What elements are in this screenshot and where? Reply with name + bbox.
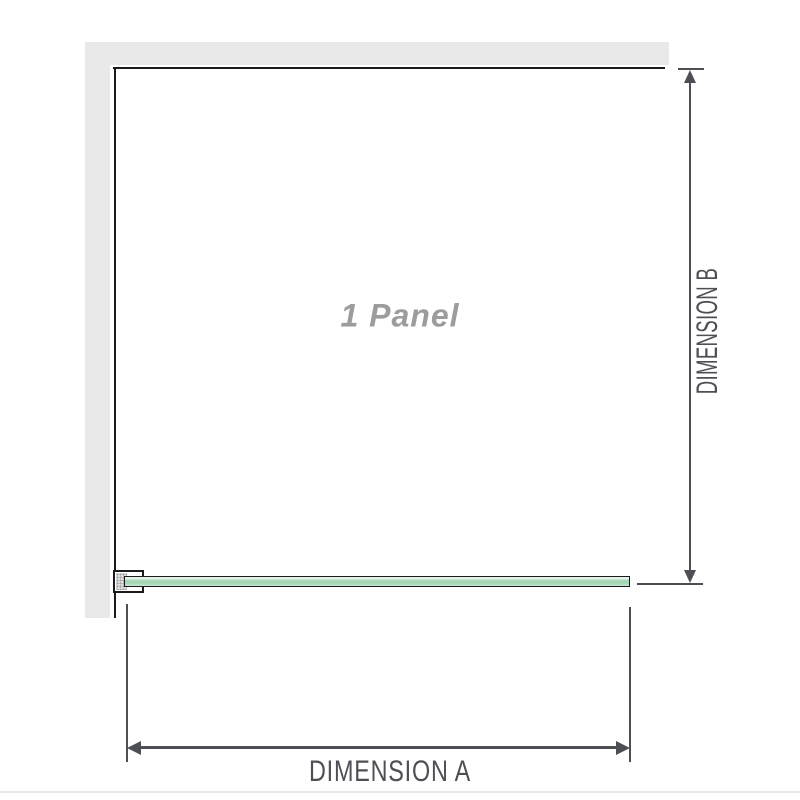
dimension-a-label: DIMENSION A	[309, 755, 471, 789]
arrow-down-icon	[684, 570, 696, 583]
dimension-a-line	[138, 746, 618, 749]
panel-left-edge	[114, 67, 116, 570]
wall-left-strip	[85, 42, 110, 618]
dimension-a-extension-left	[126, 604, 128, 762]
glass-panel-bar	[124, 576, 630, 587]
arrow-right-icon	[616, 741, 630, 755]
panel-top-edge	[113, 67, 665, 69]
arrow-left-icon	[127, 741, 141, 755]
dimension-b-label: DIMENSION B	[691, 268, 725, 394]
arrow-up-icon	[684, 70, 696, 83]
dimension-b-extension-bottom	[637, 583, 703, 585]
wall-edge-below-bracket	[114, 592, 116, 618]
panel-count-label: 1 Panel	[340, 298, 459, 335]
dimension-a-extension-right	[629, 607, 631, 762]
bottom-divider	[0, 791, 800, 793]
shower-panel-diagram: 1 Panel DIMENSION B DIMENSION A	[0, 0, 800, 800]
wall-top-strip	[85, 42, 669, 65]
